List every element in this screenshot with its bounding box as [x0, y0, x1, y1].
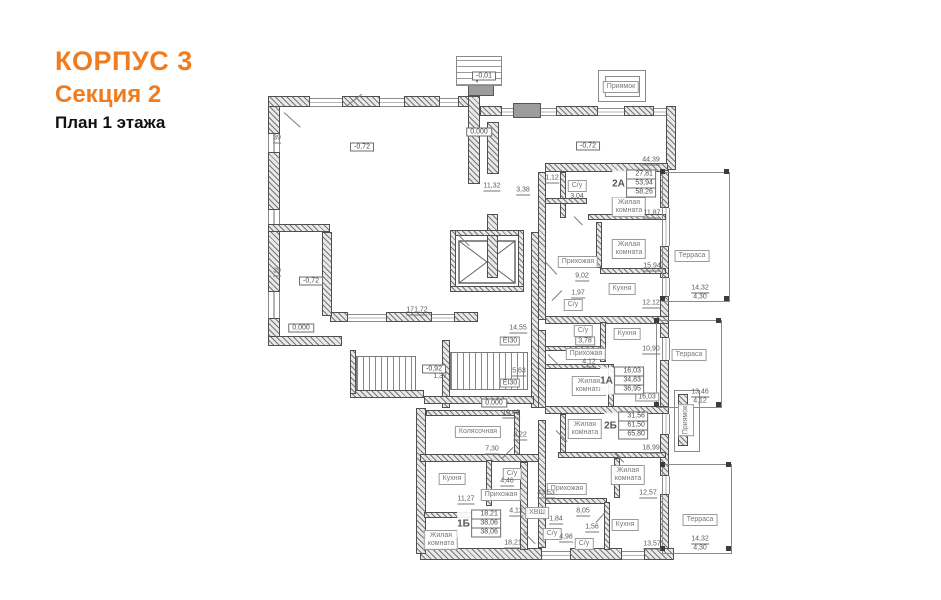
- wall: [538, 330, 546, 408]
- room-label: Жилая комната: [568, 419, 602, 439]
- terrace-post: [724, 296, 729, 301]
- dimension: 5,63: [512, 368, 526, 377]
- terrace-post: [660, 296, 665, 301]
- elevation-mark: -0,92: [422, 365, 446, 374]
- window: [268, 292, 280, 318]
- wall: [480, 106, 502, 116]
- terrace-post: [660, 462, 665, 467]
- equipment-block: [513, 103, 541, 118]
- door-swing: [546, 262, 557, 275]
- room-label: Терраса: [675, 250, 710, 262]
- room-label: С/у: [568, 180, 587, 192]
- wall: [322, 232, 332, 316]
- boxed-label: EI30: [500, 337, 520, 346]
- wall: [450, 230, 524, 236]
- elevation-mark: 0,000: [481, 399, 507, 408]
- terrace-post: [716, 318, 721, 323]
- apartment-type: 1А: [600, 376, 613, 387]
- dimension: 12,57: [639, 490, 657, 499]
- dimension: 8,05: [576, 508, 590, 517]
- apartment-area-stamp: 1А16,0334,8336,95: [600, 368, 644, 395]
- terrace-dimension: 14,324,30: [691, 536, 709, 553]
- window: [348, 314, 386, 322]
- dimension: 1,37: [433, 373, 447, 381]
- dimension: 9,02: [575, 273, 589, 282]
- room-label: Терраса: [672, 349, 707, 361]
- terrace-post: [654, 402, 659, 407]
- terrace-post: [726, 462, 731, 467]
- door-swing: [552, 290, 563, 301]
- wall: [350, 390, 424, 398]
- floor-plan: С/уЖилая комнатаЖилая комнатаПрихожаяКух…: [0, 0, 941, 600]
- dimension: 3,22: [513, 432, 527, 441]
- window: [598, 108, 624, 116]
- dimension: 3,38: [516, 187, 530, 196]
- terrace-post: [654, 318, 659, 323]
- window: [380, 98, 404, 107]
- area-value: 65,80: [618, 430, 648, 440]
- wall: [268, 152, 280, 210]
- apartment-type: 2А: [612, 179, 625, 190]
- room-label: Кухня: [612, 519, 639, 531]
- terrace-area: 4,30: [691, 294, 709, 302]
- room-label: Кухня: [439, 473, 466, 485]
- elevation-mark: -0,72: [576, 142, 600, 151]
- room-label: Прихожая: [558, 256, 598, 268]
- wall: [468, 96, 480, 184]
- terrace-area: 14,32: [691, 285, 709, 294]
- dimension: 11,27: [458, 496, 475, 505]
- wall: [350, 350, 356, 394]
- dimension: 11,87: [644, 210, 661, 219]
- room-label: Жилая комната: [611, 465, 645, 485]
- terrace-dimension: 13,464,12: [691, 389, 709, 406]
- dimension: 14,55: [509, 325, 527, 334]
- room-label: Жилая комната: [612, 197, 646, 217]
- wall: [545, 316, 669, 324]
- door-swing: [284, 112, 301, 127]
- dimension: 44,39: [642, 157, 660, 166]
- elevation-mark: -0,72: [350, 143, 374, 152]
- terrace-post: [726, 546, 731, 551]
- wall: [666, 106, 676, 170]
- area-value: 36,95: [614, 385, 644, 395]
- wall: [268, 228, 280, 292]
- dimension: 10,90: [642, 346, 660, 355]
- apartment-area-stamp: 2Б31,5661,5065,80: [604, 413, 648, 440]
- dimension: 39: [273, 268, 281, 277]
- terrace-post: [724, 169, 729, 174]
- wall: [404, 96, 440, 107]
- wall: [560, 172, 566, 218]
- dimension: 39: [273, 135, 281, 144]
- door-swing: [574, 216, 583, 225]
- window: [654, 108, 666, 116]
- room-label: Прихожая: [481, 489, 521, 501]
- elevation-mark: -0,72: [299, 277, 323, 286]
- apartment-type: 2Б: [604, 421, 617, 432]
- dimension: 1,97: [571, 290, 585, 299]
- dimension: 18,99: [642, 445, 660, 454]
- apartment-type: 1Б: [457, 519, 470, 530]
- window: [622, 551, 644, 560]
- stairs: [356, 356, 416, 392]
- dimension: 4,46: [500, 478, 514, 487]
- window: [310, 98, 342, 107]
- room-label: Жилая комната: [424, 530, 458, 550]
- wall: [424, 396, 534, 404]
- terrace-dimension: 14,324,30: [691, 285, 709, 302]
- dimension: 7,30: [485, 446, 499, 455]
- wall: [487, 214, 498, 278]
- dimension: 18,21: [504, 540, 522, 549]
- dimension: 1,56: [585, 524, 599, 533]
- wall: [518, 230, 524, 292]
- window: [662, 414, 670, 434]
- elevation-mark: -0,01: [472, 72, 496, 81]
- room-label: ХВШ: [525, 507, 549, 519]
- room-label: С/у: [564, 299, 583, 311]
- terrace-area: 4,12: [691, 398, 709, 406]
- window: [542, 551, 570, 560]
- wall: [268, 224, 330, 232]
- terrace-post: [716, 402, 721, 407]
- terrace-area: 13,46: [691, 389, 709, 398]
- wall: [556, 106, 598, 116]
- wall: [450, 286, 524, 292]
- terrace-outline: [662, 172, 730, 302]
- dimension: 4,98: [559, 534, 573, 543]
- dimension: 4,12: [582, 359, 596, 368]
- terrace-post: [660, 169, 665, 174]
- dimension: 171,72: [406, 307, 427, 316]
- room-label: Колясочная: [455, 426, 501, 438]
- dimension: 12,12: [642, 300, 660, 309]
- wall: [268, 336, 342, 346]
- dimension: 1,12: [545, 175, 559, 184]
- wall: [450, 230, 456, 292]
- room-label: Жилая комната: [612, 239, 646, 259]
- boxed-label: 3,78: [575, 337, 595, 346]
- wall: [604, 502, 610, 550]
- dimension: 43,53: [537, 490, 555, 499]
- wall: [268, 96, 310, 107]
- room-label: Приямок: [678, 404, 694, 436]
- window: [440, 98, 458, 107]
- dimension: 1,84: [549, 516, 563, 525]
- room-label: С/у: [574, 325, 593, 337]
- apartment-area-stamp: 2А27,8153,9458,26: [612, 171, 656, 198]
- room-label: Кухня: [614, 328, 641, 340]
- terrace-area: 4,30: [691, 545, 709, 553]
- dimension: 15,94: [643, 263, 661, 272]
- wall: [624, 106, 654, 116]
- dimension: 11,32: [484, 183, 501, 192]
- wall: [454, 312, 478, 322]
- dimension: 13,57: [643, 541, 661, 550]
- wall: [545, 498, 607, 504]
- dimension: 4,12: [509, 508, 523, 517]
- dimension: 10,49: [502, 410, 520, 419]
- room-label: Терраса: [683, 514, 718, 526]
- boxed-label: EI30: [500, 379, 520, 388]
- area-value: 38,06: [471, 528, 501, 538]
- wall: [420, 454, 544, 462]
- elevation-mark: 0,000: [288, 324, 314, 333]
- area-value: 58,26: [626, 188, 656, 198]
- elevation-mark: 0,000: [466, 128, 492, 137]
- wall: [330, 312, 348, 322]
- terrace-area: 14,32: [691, 536, 709, 545]
- window: [432, 314, 454, 322]
- room-label: Кухня: [609, 283, 636, 295]
- apartment-area-stamp: 1Б18,2138,0638,06: [457, 511, 501, 538]
- wall: [538, 172, 546, 320]
- dimension: 3,04: [570, 193, 584, 201]
- room-label: Приямок: [603, 81, 639, 93]
- room-label: С/у: [575, 538, 594, 550]
